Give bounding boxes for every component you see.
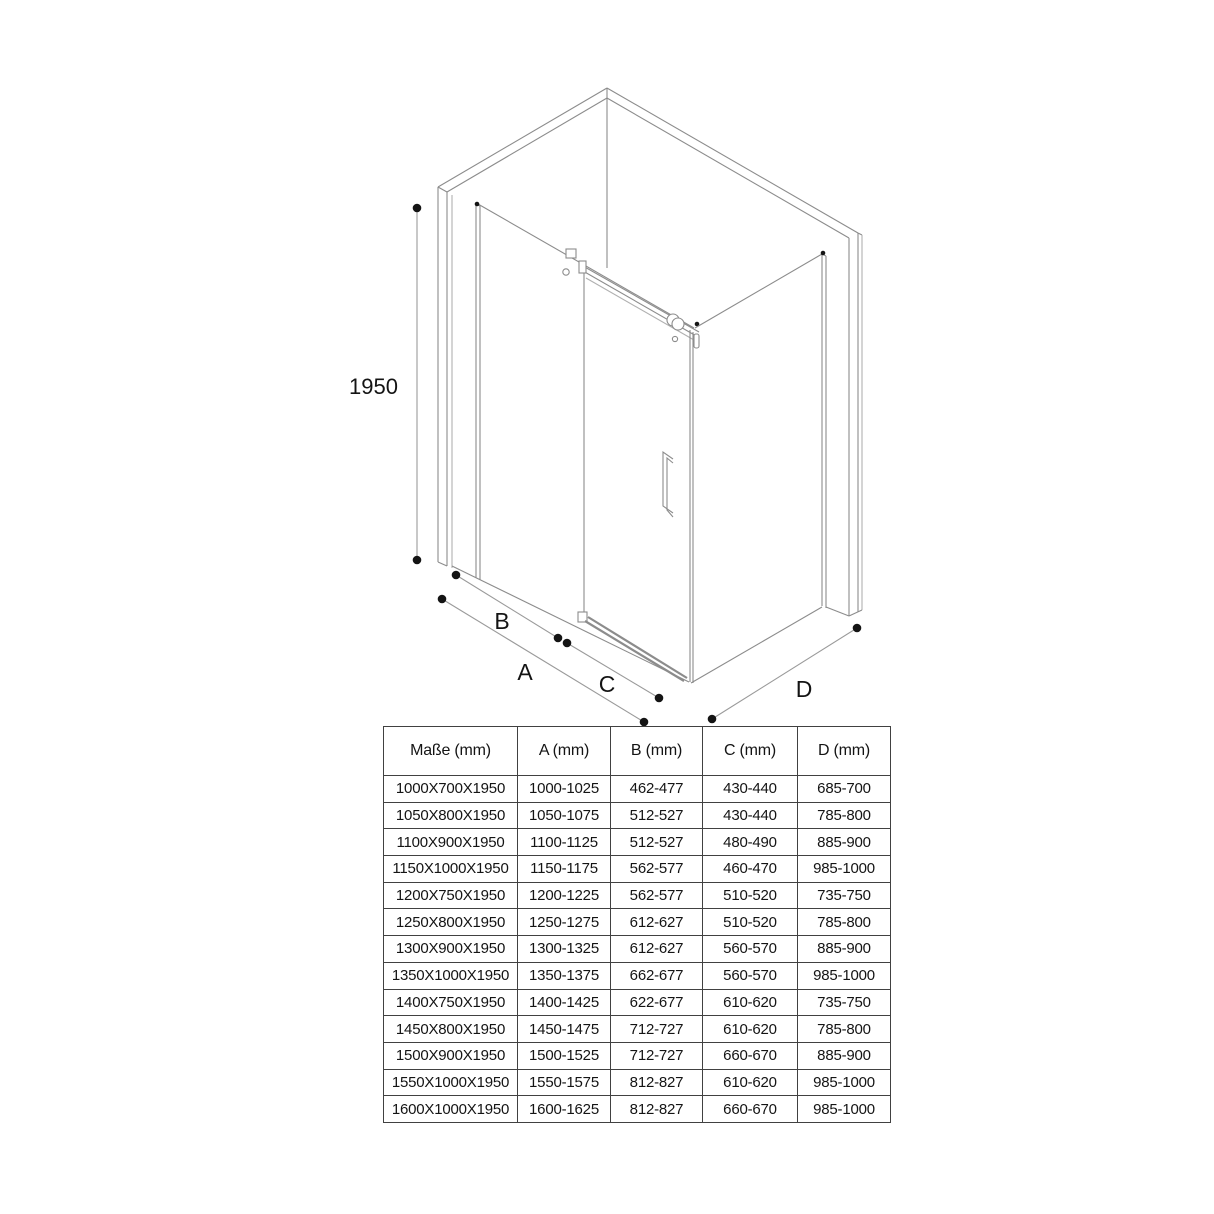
right-wall — [607, 88, 862, 616]
table-cell: 1050X800X1950 — [384, 802, 518, 829]
table-row: 1500X900X1950 1500-1525 712-727 660-670 … — [384, 1042, 891, 1069]
technical-drawing: 1950 B A C D — [0, 0, 1214, 745]
table-cell: 1550X1000X1950 — [384, 1069, 518, 1096]
table-cell: 610-620 — [703, 1016, 798, 1043]
table-cell: 1150-1175 — [518, 856, 611, 883]
table-cell: 562-577 — [611, 856, 703, 883]
table-cell: 685-700 — [798, 776, 891, 803]
table-cell: 1400X750X1950 — [384, 989, 518, 1016]
table-row: 1600X1000X1950 1600-1625 812-827 660-670… — [384, 1096, 891, 1123]
table-row: 1200X750X1950 1200-1225 562-577 510-520 … — [384, 882, 891, 909]
dim-label-b: B — [494, 608, 509, 634]
dimension-b: B — [452, 571, 563, 643]
table-cell: 512-527 — [611, 829, 703, 856]
table-cell: 1200X750X1950 — [384, 882, 518, 909]
table-cell: 785-800 — [798, 909, 891, 936]
dimension-c: C — [563, 639, 664, 703]
table-cell: 1450X800X1950 — [384, 1016, 518, 1043]
dimension-height: 1950 — [349, 204, 421, 565]
dimension-d: D — [708, 624, 862, 724]
table-row: 1300X900X1950 1300-1325 612-627 560-570 … — [384, 936, 891, 963]
table-cell: 560-570 — [703, 962, 798, 989]
table-row: 1000X700X1950 1000-1025 462-477 430-440 … — [384, 776, 891, 803]
left-wall — [438, 88, 607, 568]
table-cell: 812-827 — [611, 1096, 703, 1123]
header-a: A (mm) — [518, 727, 611, 776]
header-size: Maße (mm) — [384, 727, 518, 776]
screw-icon — [672, 336, 677, 341]
table-cell: 462-477 — [611, 776, 703, 803]
table-cell: 1500X900X1950 — [384, 1042, 518, 1069]
table-cell: 1250-1275 — [518, 909, 611, 936]
table-row: 1100X900X1950 1100-1125 512-527 480-490 … — [384, 829, 891, 856]
table-cell: 1350-1375 — [518, 962, 611, 989]
table-cell: 510-520 — [703, 882, 798, 909]
table-cell: 1350X1000X1950 — [384, 962, 518, 989]
table-cell: 785-800 — [798, 1016, 891, 1043]
table-cell: 985-1000 — [798, 1096, 891, 1123]
page: 1950 B A C D — [0, 0, 1214, 1214]
table-cell: 885-900 — [798, 936, 891, 963]
table-cell: 1150X1000X1950 — [384, 856, 518, 883]
table-row: 1450X800X1950 1450-1475 712-727 610-620 … — [384, 1016, 891, 1043]
screw-icon — [563, 269, 569, 275]
table-cell: 1050-1075 — [518, 802, 611, 829]
table-cell: 1000-1025 — [518, 776, 611, 803]
table-cell: 885-900 — [798, 829, 891, 856]
rail-bracket — [566, 249, 576, 258]
table-row: 1150X1000X1950 1150-1175 562-577 460-470… — [384, 856, 891, 883]
header-d: D (mm) — [798, 727, 891, 776]
table-cell: 512-527 — [611, 802, 703, 829]
table-cell: 985-1000 — [798, 962, 891, 989]
table-cell: 1550-1575 — [518, 1069, 611, 1096]
table-row: 1350X1000X1950 1350-1375 662-677 560-570… — [384, 962, 891, 989]
table-cell: 1450-1475 — [518, 1016, 611, 1043]
table-cell: 735-750 — [798, 989, 891, 1016]
table-cell: 985-1000 — [798, 856, 891, 883]
roller-knob-icon — [672, 318, 684, 330]
table-cell: 1600X1000X1950 — [384, 1096, 518, 1123]
side-glass-panel — [691, 251, 849, 683]
table-row: 1250X800X1950 1250-1275 612-627 510-520 … — [384, 909, 891, 936]
table-cell: 660-670 — [703, 1042, 798, 1069]
table-row: 1400X750X1950 1400-1425 622-677 610-620 … — [384, 989, 891, 1016]
table-cell: 885-900 — [798, 1042, 891, 1069]
table-cell: 1500-1525 — [518, 1042, 611, 1069]
table-cell: 612-627 — [611, 909, 703, 936]
sliding-door — [578, 273, 687, 681]
table-cell: 510-520 — [703, 909, 798, 936]
door-handle-icon — [663, 452, 673, 517]
table-cell: 812-827 — [611, 1069, 703, 1096]
table-cell: 1200-1225 — [518, 882, 611, 909]
table-cell: 1400-1425 — [518, 989, 611, 1016]
table-cell: 480-490 — [703, 829, 798, 856]
table-cell: 712-727 — [611, 1016, 703, 1043]
table-cell: 612-627 — [611, 936, 703, 963]
table-cell: 430-440 — [703, 776, 798, 803]
dim-label-d: D — [796, 676, 813, 702]
table-cell: 622-677 — [611, 989, 703, 1016]
dim-label-c: C — [599, 671, 616, 697]
rail-end-cap — [579, 261, 586, 273]
table-cell: 610-620 — [703, 989, 798, 1016]
dimension-a: A — [438, 595, 649, 727]
table-cell: 735-750 — [798, 882, 891, 909]
table-cell: 560-570 — [703, 936, 798, 963]
table-cell: 562-577 — [611, 882, 703, 909]
dim-label-1950: 1950 — [349, 374, 398, 399]
fixed-glass-panel — [452, 202, 694, 682]
table-cell: 460-470 — [703, 856, 798, 883]
table-cell: 1300X900X1950 — [384, 936, 518, 963]
table-row: 1550X1000X1950 1550-1575 812-827 610-620… — [384, 1069, 891, 1096]
dim-label-a: A — [517, 659, 533, 685]
table-cell: 1000X700X1950 — [384, 776, 518, 803]
table-cell: 662-677 — [611, 962, 703, 989]
table-cell: 1600-1625 — [518, 1096, 611, 1123]
table-header-row: Maße (mm) A (mm) B (mm) C (mm) D (mm) — [384, 727, 891, 776]
top-rail — [563, 249, 699, 342]
table-cell: 785-800 — [798, 802, 891, 829]
table-cell: 610-620 — [703, 1069, 798, 1096]
table-cell: 430-440 — [703, 802, 798, 829]
table-cell: 660-670 — [703, 1096, 798, 1123]
header-b: B (mm) — [611, 727, 703, 776]
table-row: 1050X800X1950 1050-1075 512-527 430-440 … — [384, 802, 891, 829]
table-cell: 1100X900X1950 — [384, 829, 518, 856]
corner-post — [690, 322, 699, 683]
table-cell: 1250X800X1950 — [384, 909, 518, 936]
table-cell: 1100-1125 — [518, 829, 611, 856]
table-cell: 985-1000 — [798, 1069, 891, 1096]
table-cell: 1300-1325 — [518, 936, 611, 963]
header-c: C (mm) — [703, 727, 798, 776]
table-cell: 712-727 — [611, 1042, 703, 1069]
panel-bracket — [694, 334, 699, 348]
dimensions-table: Maße (mm) A (mm) B (mm) C (mm) D (mm) 10… — [383, 726, 891, 1123]
